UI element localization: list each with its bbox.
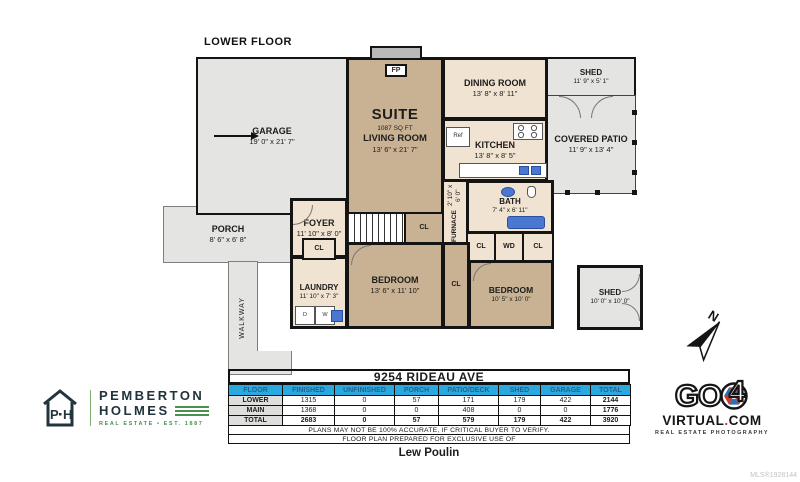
patio-post [632,110,637,115]
cell: 579 [439,416,499,426]
cell: 0 [335,416,395,426]
cell: 179 [499,396,541,406]
room-area: 1087 SQ FT [363,125,427,133]
room-name: SUITE [363,106,427,125]
room-dims: 11' 10" x 8' 0" [297,229,342,238]
house-icon: P H [38,388,82,428]
bath-sink-icon [501,187,515,197]
disclaimer-accuracy: PLANS MAY NOT BE 100% ACCURATE, IF CRITI… [228,426,630,435]
cell: 171 [439,396,499,406]
room-name: SHED [599,288,621,298]
closet-bath: CL [466,232,496,262]
pemberton-holmes-logo: P H PEMBERTON HOLMES REAL ESTATE • EST. … [38,388,209,428]
patio-post [632,140,637,145]
closet-hall: CL [522,232,554,262]
cell-total: 3920 [591,416,631,426]
closet-label: CL [419,224,428,233]
fridge-label: Ref [453,133,462,141]
go4-tagline: REAL ESTATE PHOTOGRAPHY [648,430,776,436]
room-dims: 13' 6" x 11' 10" [371,286,420,295]
room-dims: 10' 5" x 10' 0" [491,296,530,304]
room-name: PORCH [212,224,245,235]
go4-domain: VIRTUAL [662,413,724,428]
fireplace: FP [385,64,407,77]
cell: 57 [395,396,439,406]
room-name: FOYER [303,218,334,229]
cell: 422 [541,396,591,406]
room-dims: 11' 10" x 7' 3" [300,293,339,301]
brand-tagline: REAL ESTATE • EST. 1887 [99,421,209,427]
bathtub-icon [507,216,545,229]
washer-dryer: WD [494,232,524,262]
go4-virtual-logo: GO 4 VIRTUAL.COM [648,377,776,436]
room-bedroom-2: BEDROOM 10' 5" x 10' 0" [468,260,554,329]
room-name: SHED [580,68,602,78]
cell: 0 [541,406,591,416]
cell: 57 [395,416,439,426]
door-arc [473,263,491,281]
cell: 179 [499,416,541,426]
door-arc [351,245,371,265]
cell-floor: LOWER [229,396,283,406]
cell: 2683 [283,416,335,426]
room-laundry: LAUNDRY 11' 10" x 7' 3" D W [290,256,348,329]
floor-label: LOWER FLOOR [204,36,292,48]
room-dims: 13' 8" x 8' 5" [474,151,515,160]
room-dims: 7' 4" x 6' 11" [492,207,527,215]
col-header: UNFINISHED [335,385,395,396]
brand-line2: HOLMES [99,404,170,419]
cell-floor: MAIN [229,406,283,416]
sink-icon [519,166,529,175]
room-dims: 11' 9" x 5' 1" [573,78,608,86]
col-header: SHED [499,385,541,396]
room-name: KITCHEN [475,140,515,151]
chimney [370,46,422,60]
patio-post [595,190,600,195]
monogram-h: H [63,407,72,422]
go4-four-text: 4 [729,377,745,407]
room-bedroom-1: BEDROOM 13' 6" x 11' 10" [346,242,444,329]
logo-accent-lines [175,404,209,418]
door-arc [622,303,640,321]
col-header: TOTAL [591,385,631,396]
dryer-icon: D [295,306,315,325]
room-subname: LIVING ROOM [363,133,427,145]
washer-label: W [322,312,327,319]
area-summary: 9254 RIDEAU AVE FLOOR FINISHED UNFINISHE… [228,369,630,459]
cell: 0 [395,406,439,416]
closet-label: CL [314,245,323,254]
closet-foyer: CL [302,238,336,260]
stairs [346,212,406,244]
col-header: PATIO/DECK [439,385,499,396]
garage-door-arrow [214,131,260,141]
cell: 1315 [283,396,335,406]
floor-plan-page: LOWER FLOOR PORCH 8' 6" x 6' 8" WALKWAY … [0,0,800,482]
cell: 408 [439,406,499,416]
prepared-for-name: Lew Poulin [228,447,630,459]
disclaimer-exclusive-use: FLOOR PLAN PREPARED FOR EXCLUSIVE USE OF [228,435,630,444]
room-bath: BATH 7' 4" x 6' 11" [466,180,554,234]
patio-post [632,170,637,175]
fridge: Ref [446,127,470,147]
logo-divider [90,390,91,426]
room-shed-upper: SHED 11' 9" x 5' 1" [546,57,636,97]
room-covered-patio: COVERED PATIO 11' 9" x 13' 4" [546,95,636,194]
cell-total: 1776 [591,406,631,416]
room-dims: 13' 8" x 8' 11" [473,89,518,98]
sink-icon [531,166,541,175]
address-title: 9254 RIDEAU AVE [228,369,630,384]
door-arc [559,96,581,118]
col-header: PORCH [395,385,439,396]
cell: 0 [335,396,395,406]
closet-bedrooms: CL [442,242,470,329]
room-garage: GARAGE 19' 0" x 21' 7" [196,57,348,215]
go4-go-text: GO [675,381,721,411]
room-kitchen: KITCHEN 13' 8" x 8' 5" Ref [442,118,548,182]
mls-number: MLS®1928144 [750,472,797,479]
door-arc [591,96,613,118]
room-dining: DINING ROOM 13' 8" x 8' 11" [442,57,548,120]
room-name: DINING ROOM [464,78,526,89]
go4-domain-tld: COM [729,413,762,428]
col-header: FINISHED [283,385,335,396]
closet-label: CL [451,281,460,290]
room-name: BATH [499,197,521,207]
room-name: BEDROOM [489,285,533,296]
cell-floor: TOTAL [229,416,283,426]
room-dims: 2' 10" x 6' 0" [447,182,463,209]
room-dims: 11' 9" x 13' 4" [569,145,614,154]
laundry-sink-icon [331,310,343,322]
closet-label: CL [476,243,485,252]
room-dims: 8' 6" x 6' 8" [210,235,247,244]
toilet-icon [527,186,536,198]
table-header-row: FLOOR FINISHED UNFINISHED PORCH PATIO/DE… [229,385,631,396]
patio-post [632,190,637,195]
compass-icon: N [681,303,731,365]
cell: 0 [499,406,541,416]
room-name: LAUNDRY [300,283,339,293]
table-row-total: TOTAL 2683 0 57 579 179 422 3920 [229,416,631,426]
table-row: LOWER 1315 0 57 171 179 422 2144 [229,396,631,406]
brand-line1: PEMBERTON [99,389,209,404]
washer-dryer-label: WD [503,243,515,252]
cell: 1368 [283,406,335,416]
fireplace-label: FP [392,67,401,74]
col-header: GARAGE [541,385,591,396]
cell: 0 [335,406,395,416]
cell: 422 [541,416,591,426]
room-shed-lower: SHED 10' 0" x 10' 0" [577,265,643,330]
stove-icon [513,123,543,140]
monogram-p: P [50,407,59,422]
col-header: FLOOR [229,385,283,396]
room-dims: 13' 6" x 21' 7" [363,145,427,154]
table-row: MAIN 1368 0 0 408 0 0 1776 [229,406,631,416]
dryer-label: D [303,312,307,319]
closet-label: CL [533,243,542,252]
area-table: FLOOR FINISHED UNFINISHED PORCH PATIO/DE… [228,384,631,426]
room-name: WALKWAY [239,297,248,339]
room-name: FURNACE [451,210,459,242]
cell-total: 2144 [591,396,631,406]
door-arc [622,274,640,292]
room-furnace: FURNACE 2' 10" x 6' 0" [442,180,468,244]
room-name: BEDROOM [372,275,419,286]
room-name: COVERED PATIO [554,134,627,145]
closet-suite: CL [404,212,444,244]
patio-post [565,190,570,195]
